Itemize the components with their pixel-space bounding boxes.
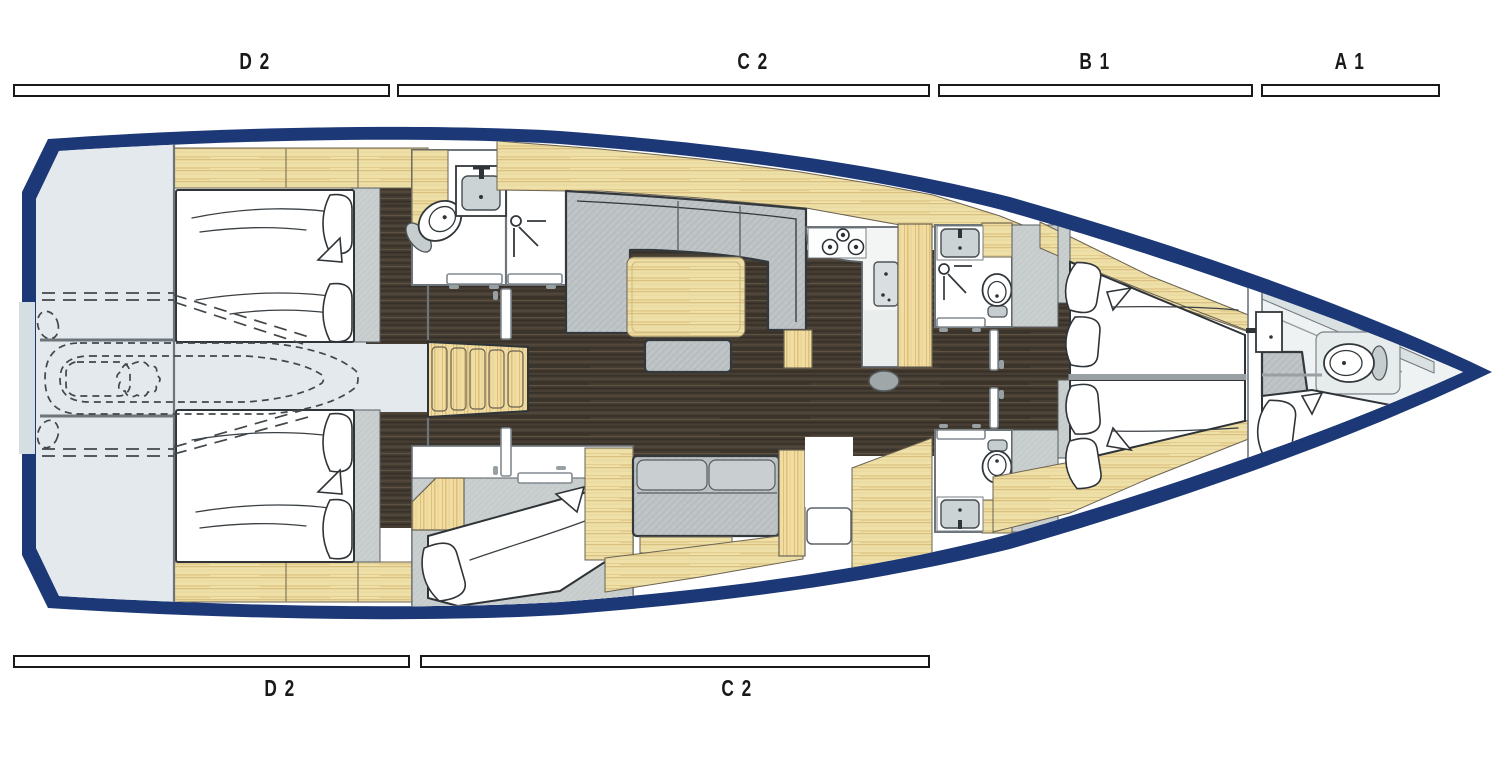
door-mid-cabin xyxy=(518,473,572,483)
cabinetry-headshelf xyxy=(174,148,428,188)
settee-side-panel xyxy=(779,450,805,556)
swim-platform xyxy=(33,136,174,616)
washbasin xyxy=(937,226,983,260)
door-corridor-fwd-bottom xyxy=(990,388,998,428)
door-aft-head xyxy=(447,274,502,284)
galley-sink xyxy=(874,262,898,306)
companionway-stairs xyxy=(428,342,528,417)
door-mid-head-starboard xyxy=(937,430,985,439)
transom-gate xyxy=(19,302,35,454)
lazarette-strip xyxy=(174,342,428,415)
door-shower xyxy=(508,274,562,284)
door-corridor-aft-top xyxy=(501,289,511,339)
cabinetry-footshelf xyxy=(174,562,428,602)
door-corridor-aft-bottom xyxy=(501,428,511,476)
wardrobe xyxy=(585,448,633,560)
counter-white xyxy=(805,437,853,507)
head-shelf-wood xyxy=(982,223,1012,257)
bed-frame xyxy=(352,188,380,342)
door-mid-head-port xyxy=(937,318,985,327)
berth-split-line xyxy=(1070,376,1245,379)
pillow xyxy=(323,500,352,559)
mid-cabin-starboard xyxy=(412,446,633,614)
yacht-deck-plan: D 2 C 2 B 1 A 1 D 2 C 2 xyxy=(0,0,1500,758)
floorplan-drawing xyxy=(0,0,1500,758)
door-corridor-fwd-top xyxy=(990,330,998,370)
saloon-table xyxy=(627,257,745,337)
icebox-counter xyxy=(864,310,898,366)
washbasin xyxy=(937,497,983,531)
side-cabinet xyxy=(784,330,812,368)
pillow xyxy=(323,284,352,342)
mid-head-port xyxy=(935,223,1012,327)
bed-frame xyxy=(352,410,380,562)
pillow xyxy=(323,414,352,472)
toilet xyxy=(1324,344,1387,382)
ottoman xyxy=(645,340,731,372)
galley-wood-column xyxy=(898,224,932,367)
stool xyxy=(869,371,899,391)
low-cabinet xyxy=(807,508,851,544)
